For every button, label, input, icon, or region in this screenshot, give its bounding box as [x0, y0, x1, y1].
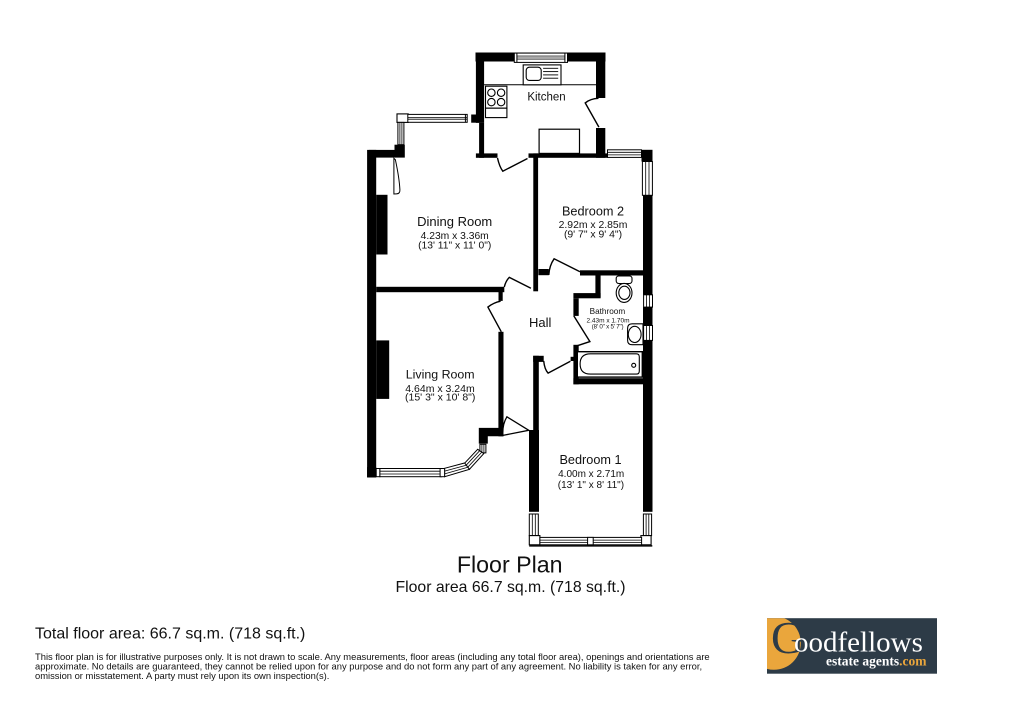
svg-text:Kitchen: Kitchen [527, 92, 565, 104]
svg-text:4.00m x 2.71m: 4.00m x 2.71m [558, 469, 624, 480]
svg-text:Floor area 66.7 sq.m. (718 sq.: Floor area 66.7 sq.m. (718 sq.ft.) [395, 579, 625, 596]
svg-text:Hall: Hall [529, 315, 552, 330]
svg-text:(13' 1" x 8' 11"): (13' 1" x 8' 11") [558, 480, 624, 491]
svg-text:(8' 0" x 5' 7"): (8' 0" x 5' 7") [592, 324, 624, 331]
svg-text:omission or misstatement. A pa: omission or misstatement. A party must r… [35, 670, 329, 681]
svg-text:(13' 11" x 11' 0"): (13' 11" x 11' 0") [418, 241, 491, 252]
svg-text:Bedroom 1: Bedroom 1 [559, 453, 621, 467]
svg-text:estate agents.com: estate agents.com [826, 654, 927, 669]
svg-text:Floor Plan: Floor Plan [457, 551, 563, 577]
svg-text:Bathroom: Bathroom [590, 307, 626, 316]
svg-text:Total floor area: 66.7 sq.m. (: Total floor area: 66.7 sq.m. (718 sq.ft.… [35, 626, 305, 643]
svg-text:(9' 7" x 9' 4"): (9' 7" x 9' 4") [564, 230, 622, 241]
svg-text:Bedroom 2: Bedroom 2 [562, 204, 624, 218]
svg-text:Living Room: Living Room [406, 368, 475, 382]
svg-text:(15' 3" x 10' 8"): (15' 3" x 10' 8") [405, 391, 475, 403]
svg-text:Dining Room: Dining Room [417, 214, 492, 229]
